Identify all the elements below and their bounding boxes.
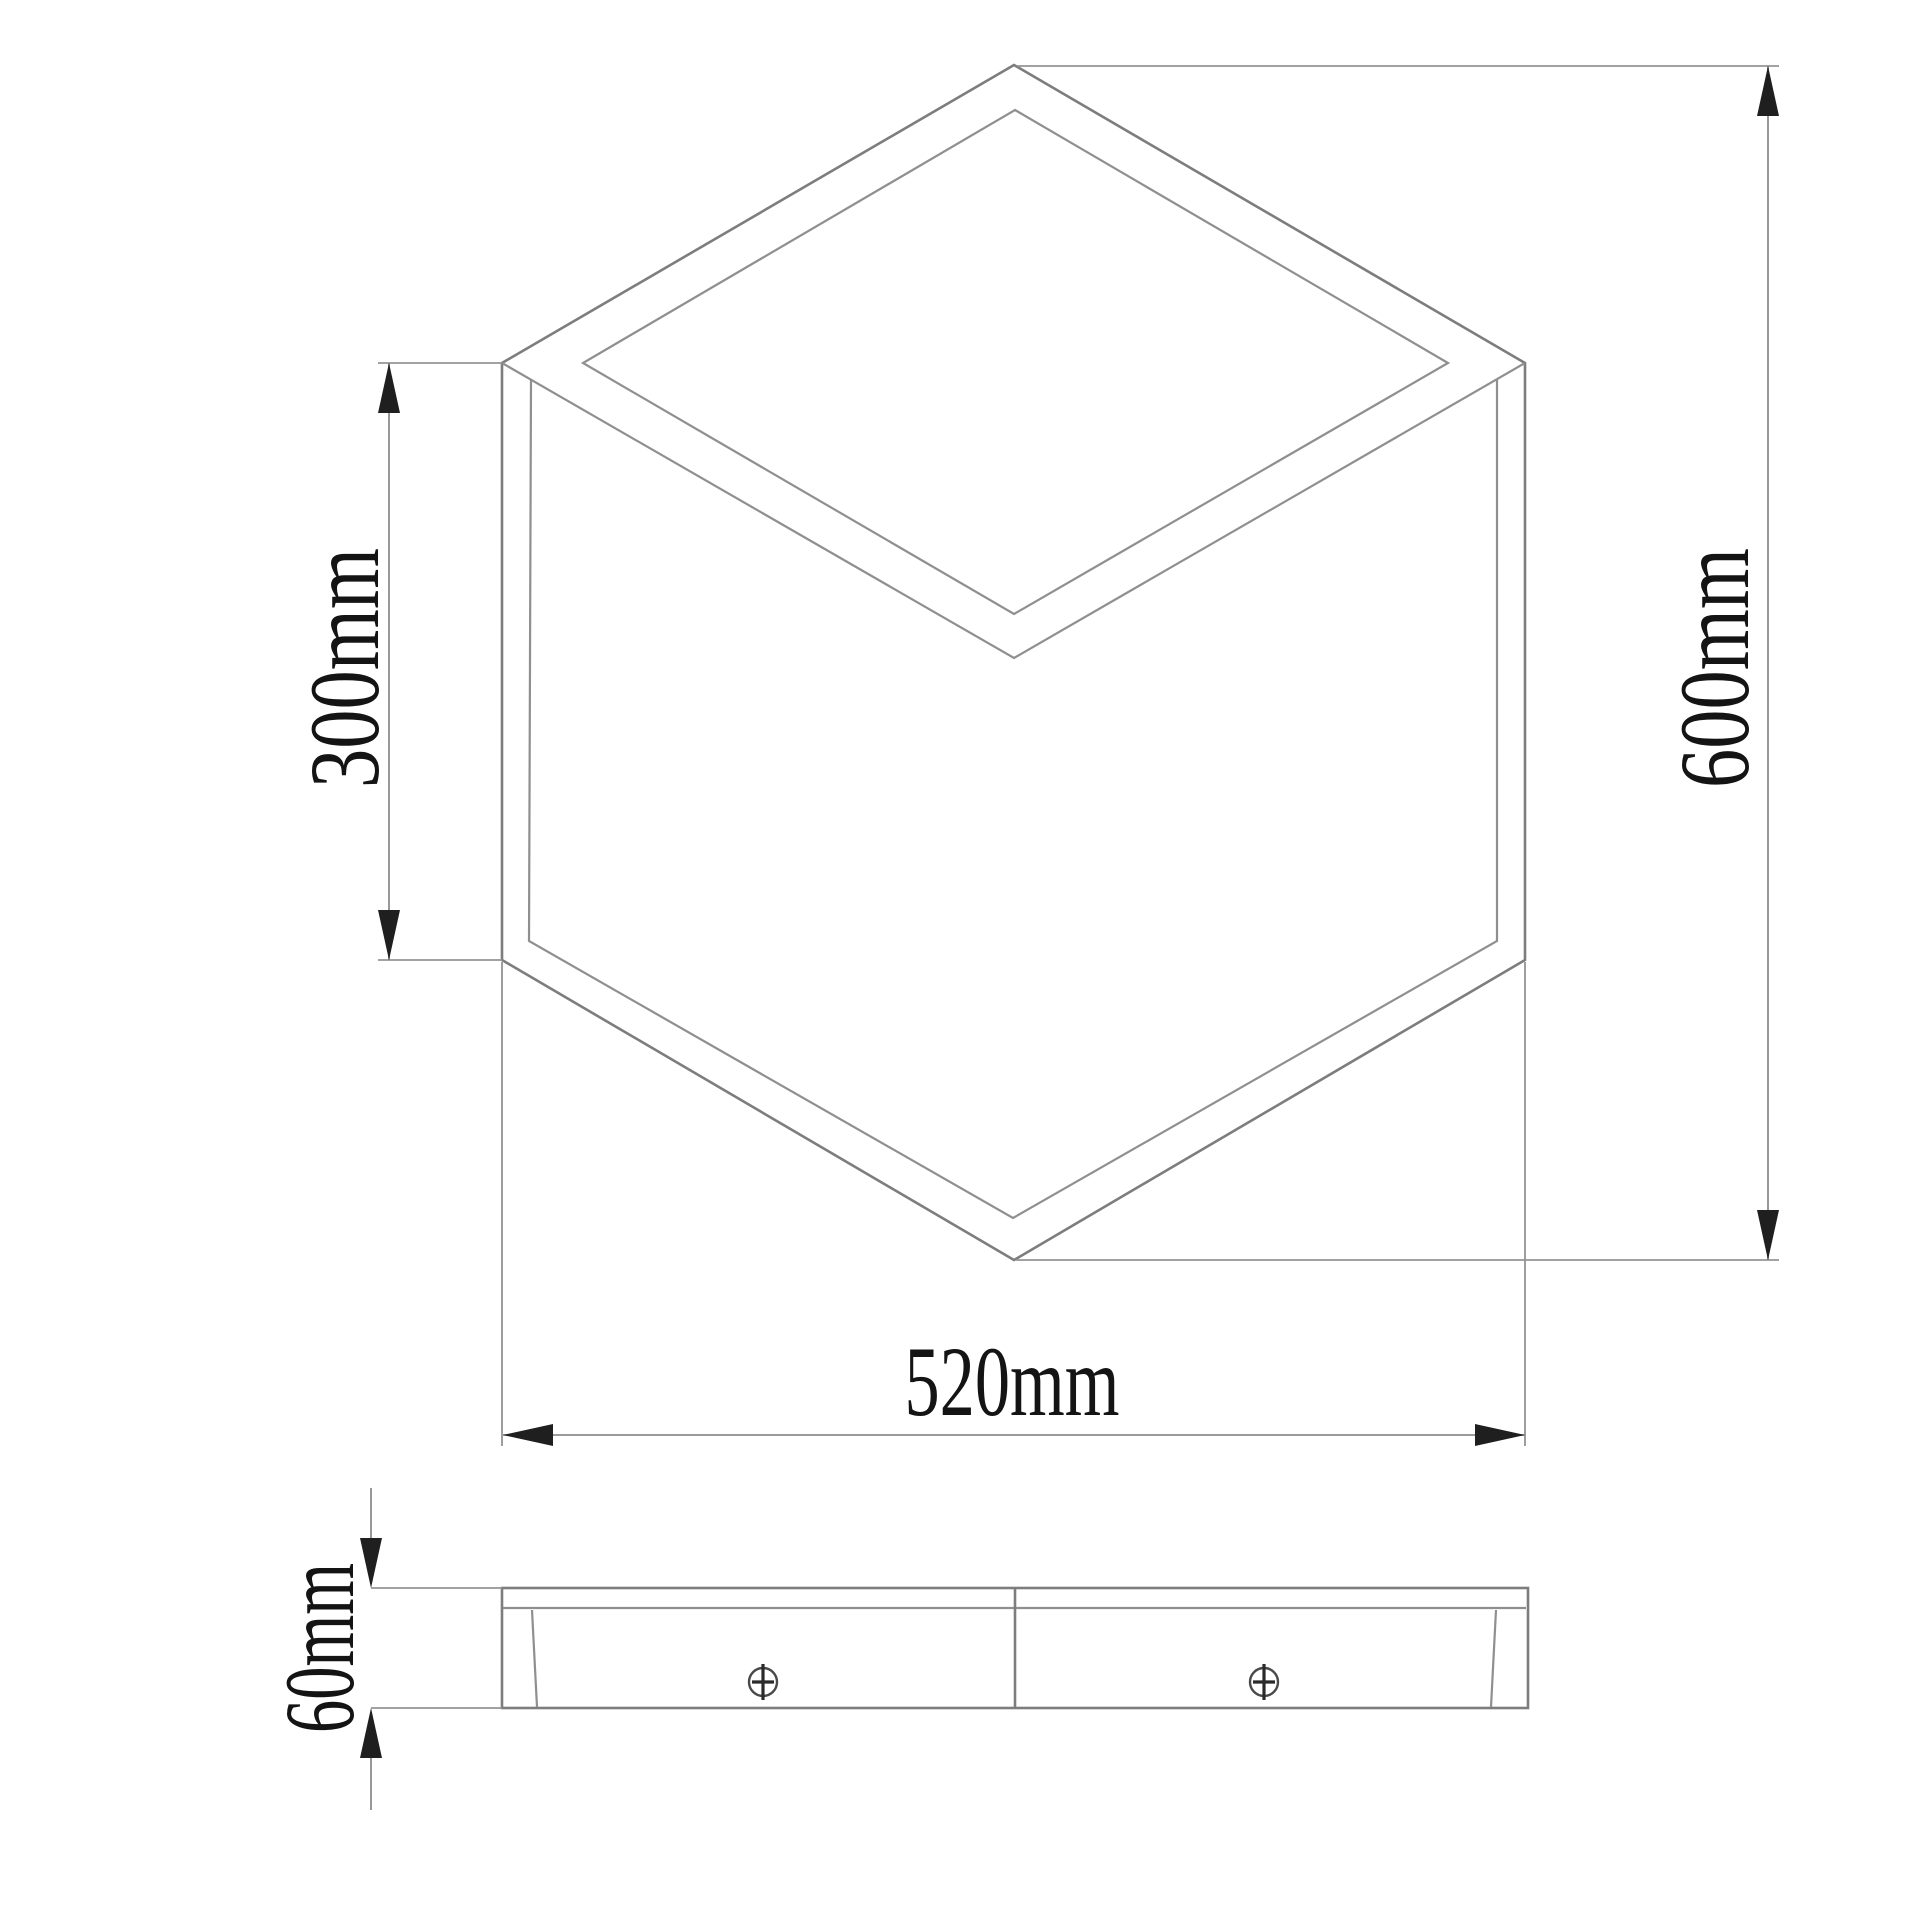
dimension-300mm: 300mm	[289, 363, 502, 960]
arrowhead-down-icon	[378, 910, 400, 960]
dimension-520mm: 520mm	[502, 962, 1525, 1446]
arrowhead-left-icon	[503, 1424, 553, 1446]
dim-label-520mm: 520mm	[905, 1326, 1120, 1437]
dim-label-600mm: 600mm	[1659, 548, 1770, 788]
phillips-screw-icon	[1250, 1664, 1278, 1700]
inner-diamond-panel	[583, 110, 1448, 614]
dim-label-60mm: 60mm	[264, 1563, 375, 1733]
dimension-600mm: 600mm	[1016, 66, 1779, 1260]
inner-border-line	[529, 380, 1497, 1218]
hexagon-outline	[502, 65, 1525, 1260]
side-view	[502, 1588, 1528, 1708]
phillips-screw-icon	[749, 1664, 777, 1700]
profile-left-bevel-line	[532, 1610, 537, 1707]
dimension-drawing-canvas: 300mm 600mm 520mm	[0, 0, 1920, 1920]
front-view	[502, 65, 1525, 1260]
dim-label-300mm: 300mm	[289, 548, 400, 788]
dimension-60mm: 60mm	[264, 1488, 502, 1810]
technical-drawing-page: 300mm 600mm 520mm	[0, 0, 1920, 1920]
arrowhead-down-icon	[1757, 1210, 1779, 1260]
arrowhead-up-icon	[378, 363, 400, 413]
arrowhead-up-icon	[1757, 66, 1779, 116]
profile-right-bevel-line	[1491, 1610, 1496, 1707]
arrowhead-right-icon	[1475, 1424, 1525, 1446]
